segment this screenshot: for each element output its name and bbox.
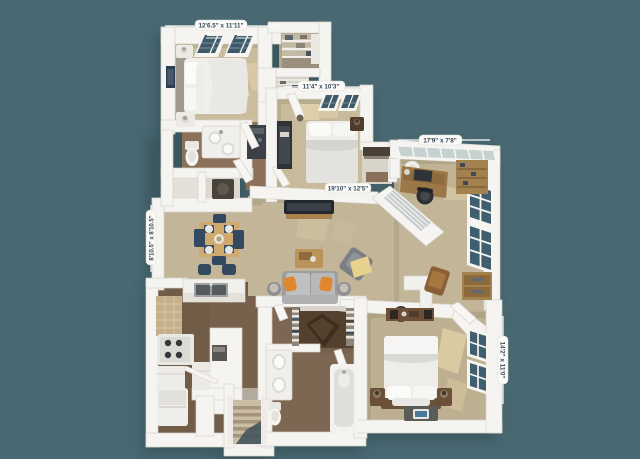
svg-text:14'2" x 11'0": 14'2" x 11'0" <box>498 342 505 379</box>
svg-text:17'9" x 7'8": 17'9" x 7'8" <box>423 138 456 145</box>
svg-text:12'6.5" x 11'11": 12'6.5" x 11'11" <box>198 23 243 30</box>
svg-text:19'10" x 12'5": 19'10" x 12'5" <box>328 186 368 193</box>
svg-text:11'4" x 10'3": 11'4" x 10'3" <box>303 84 340 91</box>
svg-text:8'10.5" x 8'10.5": 8'10.5" x 8'10.5" <box>150 215 156 260</box>
